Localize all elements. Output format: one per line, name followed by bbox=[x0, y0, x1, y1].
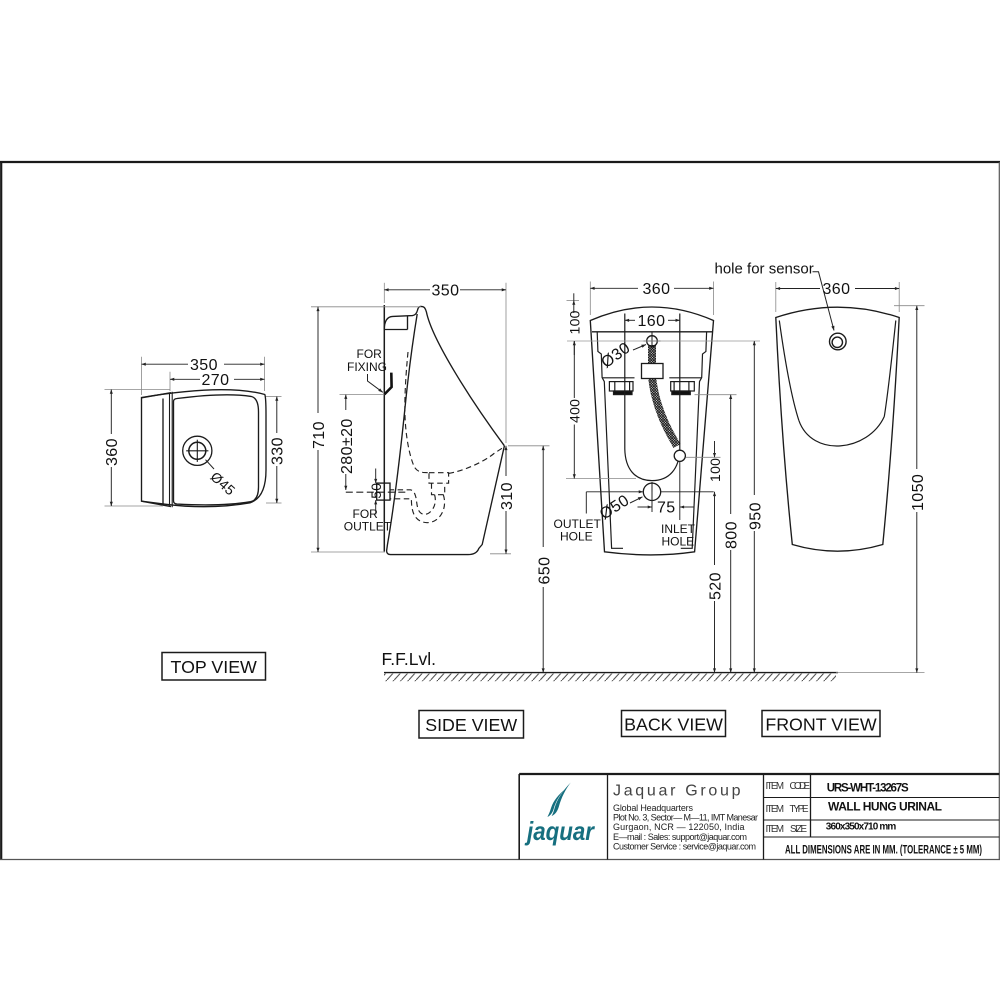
svg-text:ITEM: ITEM bbox=[766, 824, 785, 835]
svg-text:ITEM: ITEM bbox=[766, 804, 785, 815]
svg-text:280±20: 280±20 bbox=[339, 418, 356, 474]
svg-text:HOLE: HOLE bbox=[662, 535, 695, 549]
svg-text:SIDE VIEW: SIDE VIEW bbox=[425, 715, 517, 735]
svg-text:100: 100 bbox=[707, 458, 723, 482]
svg-text:FIXING: FIXING bbox=[347, 360, 387, 374]
svg-text:330: 330 bbox=[270, 437, 287, 465]
svg-text:950: 950 bbox=[747, 502, 764, 530]
svg-text:F.F.Lvl.: F.F.Lvl. bbox=[382, 649, 436, 669]
svg-text:jaquar: jaquar bbox=[524, 816, 595, 846]
svg-text:400: 400 bbox=[567, 399, 583, 423]
svg-text:HOLE: HOLE bbox=[560, 530, 593, 544]
svg-text:hole for sensor: hole for sensor bbox=[715, 261, 814, 278]
svg-text:Customer Service : service@jaq: Customer Service : service@jaquar.com bbox=[613, 841, 756, 851]
svg-text:CODE: CODE bbox=[790, 781, 811, 792]
svg-text:270: 270 bbox=[202, 372, 230, 389]
svg-text:360: 360 bbox=[643, 281, 671, 298]
svg-text:ALL DIMENSIONS ARE IN MM. (TOL: ALL DIMENSIONS ARE IN MM. (TOLERANCE ± 5… bbox=[785, 845, 982, 857]
svg-text:1050: 1050 bbox=[910, 474, 927, 511]
svg-text:160: 160 bbox=[638, 313, 666, 330]
svg-text:BACK VIEW: BACK VIEW bbox=[624, 715, 723, 735]
svg-text:OUTLET: OUTLET bbox=[344, 520, 392, 534]
svg-text:TYPE: TYPE bbox=[790, 804, 809, 815]
svg-text:75: 75 bbox=[657, 500, 676, 517]
svg-text:WALL HUNG URINAL: WALL HUNG URINAL bbox=[828, 800, 942, 814]
svg-text:FOR: FOR bbox=[357, 347, 383, 361]
svg-text:ITEM: ITEM bbox=[766, 781, 785, 792]
svg-text:50: 50 bbox=[368, 483, 384, 499]
svg-text:310: 310 bbox=[499, 482, 516, 510]
svg-text:100: 100 bbox=[566, 310, 582, 334]
svg-text:360: 360 bbox=[823, 281, 851, 298]
svg-text:800: 800 bbox=[724, 521, 741, 549]
svg-text:710: 710 bbox=[311, 421, 328, 449]
svg-text:FRONT VIEW: FRONT VIEW bbox=[765, 715, 877, 735]
svg-text:650: 650 bbox=[537, 557, 554, 585]
svg-text:Global Headquarters: Global Headquarters bbox=[613, 803, 694, 813]
svg-text:Plot No. 3, Sector— M—11, IMT: Plot No. 3, Sector— M—11, IMT Manesar bbox=[613, 813, 758, 823]
svg-text:360: 360 bbox=[104, 438, 121, 466]
svg-text:360x350x710 mm: 360x350x710 mm bbox=[826, 822, 897, 833]
svg-text:SIZE: SIZE bbox=[790, 824, 807, 835]
svg-text:350: 350 bbox=[432, 283, 460, 300]
svg-text:TOP VIEW: TOP VIEW bbox=[171, 657, 258, 677]
svg-text:Gurgaon, NCR — 122050, India: Gurgaon, NCR — 122050, India bbox=[613, 822, 745, 832]
svg-text:520: 520 bbox=[708, 572, 725, 600]
svg-text:URS-WHT-13267S: URS-WHT-13267S bbox=[827, 783, 909, 795]
